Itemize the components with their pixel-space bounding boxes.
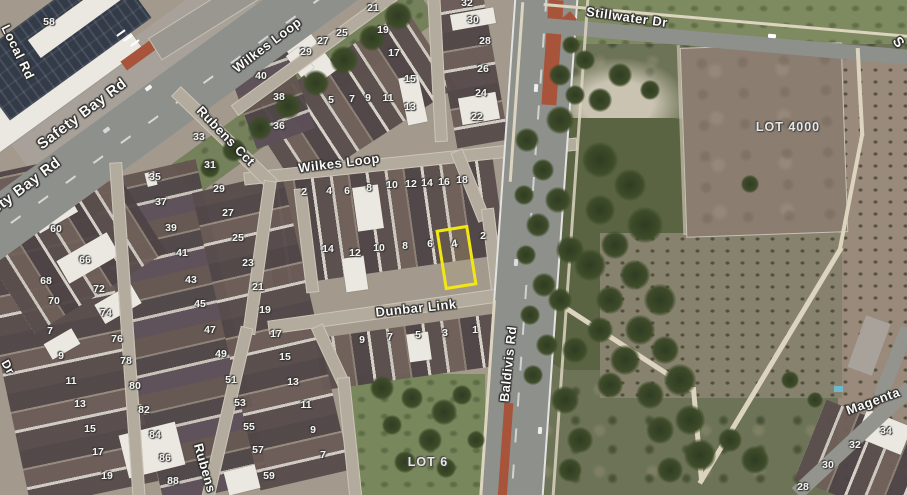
- lot-4000-field: [680, 42, 849, 238]
- pool: [834, 386, 843, 392]
- aerial-map[interactable]: 4 Safety Bay RdSafety Bay RdLocal RdWilk…: [0, 0, 907, 495]
- scrub-south: [600, 233, 842, 398]
- highlighted-lot-number: 4: [450, 238, 458, 251]
- lot-6-field: [350, 374, 485, 495]
